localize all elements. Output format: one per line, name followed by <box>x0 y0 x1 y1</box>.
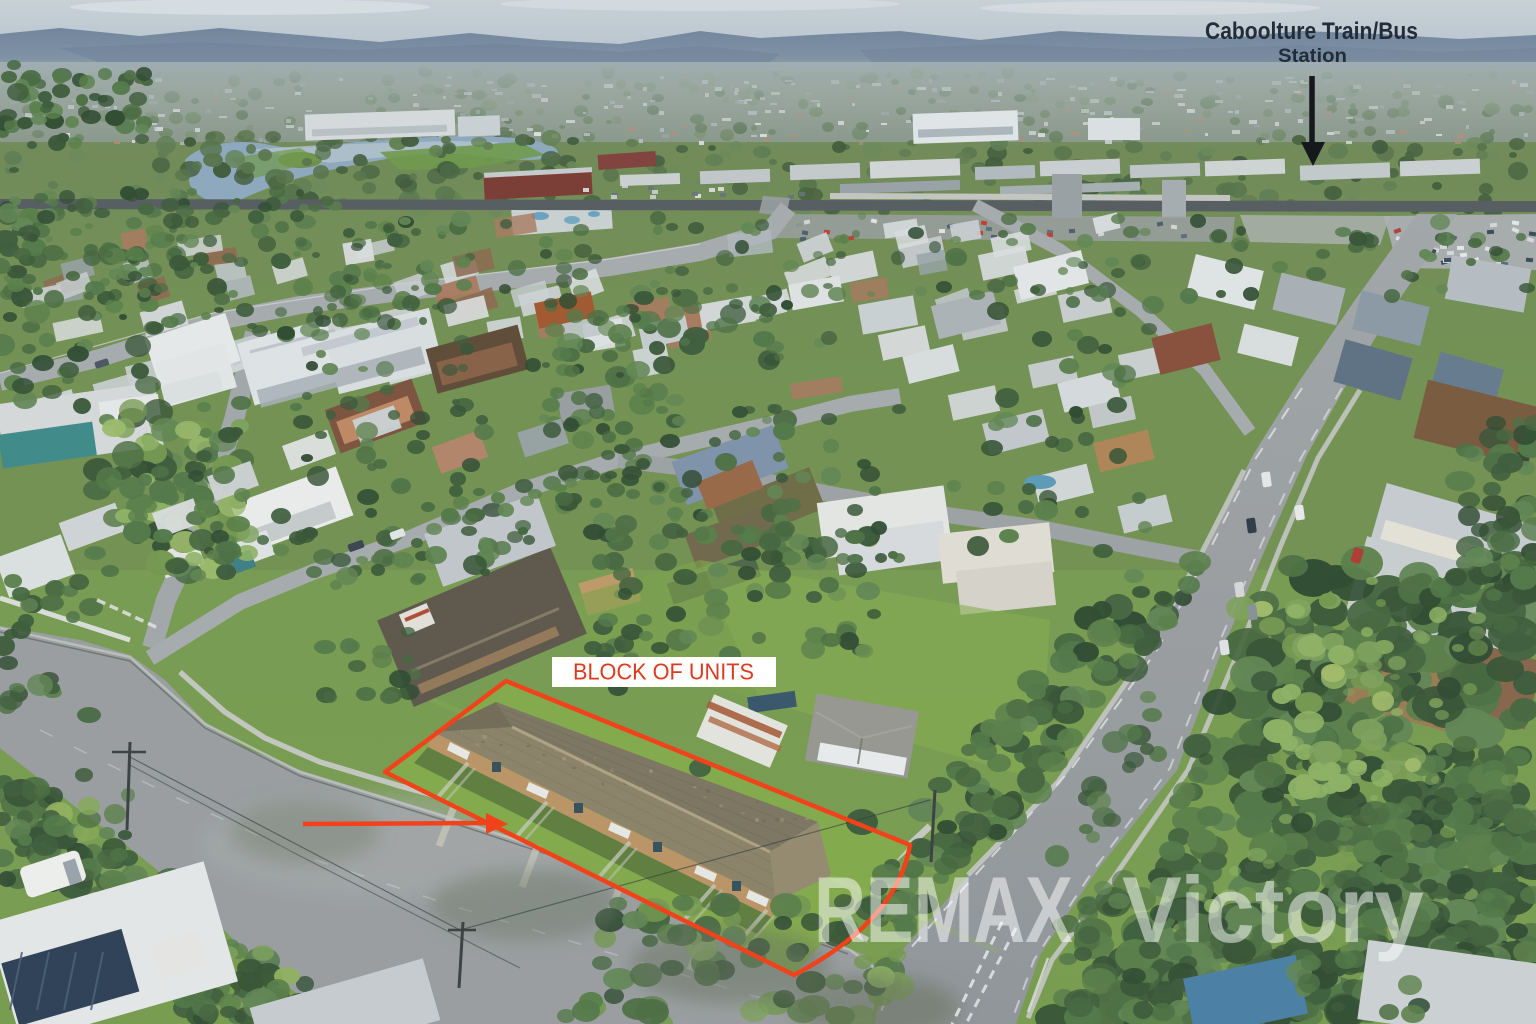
svg-text:Victory: Victory <box>1122 857 1424 962</box>
svg-text:Caboolture Train/Bus: Caboolture Train/Bus <box>1205 18 1418 45</box>
svg-text:Station: Station <box>1278 45 1347 67</box>
svg-text:BLOCK OF UNITS: BLOCK OF UNITS <box>573 659 754 685</box>
svg-text:REMAX: REMAX <box>814 857 1073 962</box>
